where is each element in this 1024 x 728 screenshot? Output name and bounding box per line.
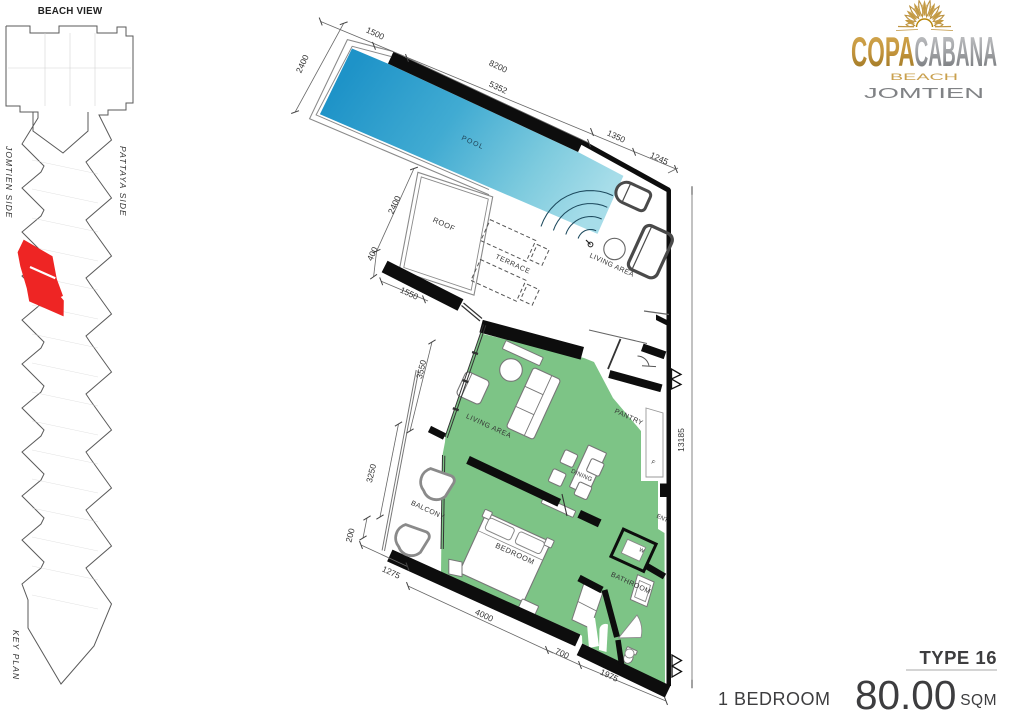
svg-text:80.00: 80.00	[855, 672, 956, 718]
svg-text:2400: 2400	[294, 53, 311, 75]
svg-text:1500: 1500	[365, 25, 387, 42]
svg-text:8200: 8200	[488, 58, 510, 75]
svg-text:BEACH: BEACH	[890, 72, 958, 83]
svg-text:CABANA: CABANA	[914, 29, 997, 76]
svg-text:200: 200	[344, 527, 357, 543]
svg-text:400: 400	[365, 245, 380, 262]
svg-text:TYPE 16: TYPE 16	[919, 647, 997, 668]
svg-text:1245: 1245	[649, 150, 671, 167]
svg-text:PATTAYA SIDE: PATTAYA SIDE	[118, 146, 128, 217]
svg-text:SQM: SQM	[960, 692, 997, 709]
svg-text:BEACH VIEW: BEACH VIEW	[38, 6, 103, 17]
svg-text:1 BEDROOM: 1 BEDROOM	[718, 689, 831, 709]
svg-text:1350: 1350	[606, 128, 628, 145]
svg-text:KEY PLAN: KEY PLAN	[11, 630, 21, 680]
svg-text:3250: 3250	[364, 463, 378, 484]
svg-text:COPA: COPA	[851, 29, 914, 76]
svg-text:3550: 3550	[414, 359, 428, 380]
svg-text:700: 700	[554, 646, 571, 661]
svg-text:TERRACE: TERRACE	[494, 254, 531, 276]
svg-text:5352: 5352	[488, 79, 510, 96]
svg-text:13185: 13185	[676, 428, 686, 452]
svg-text:BALCONY: BALCONY	[410, 500, 446, 521]
svg-text:2400: 2400	[386, 194, 403, 216]
svg-text:JOMTIEN SIDE: JOMTIEN SIDE	[4, 145, 14, 219]
svg-text:JOMTIEN: JOMTIEN	[864, 86, 984, 102]
